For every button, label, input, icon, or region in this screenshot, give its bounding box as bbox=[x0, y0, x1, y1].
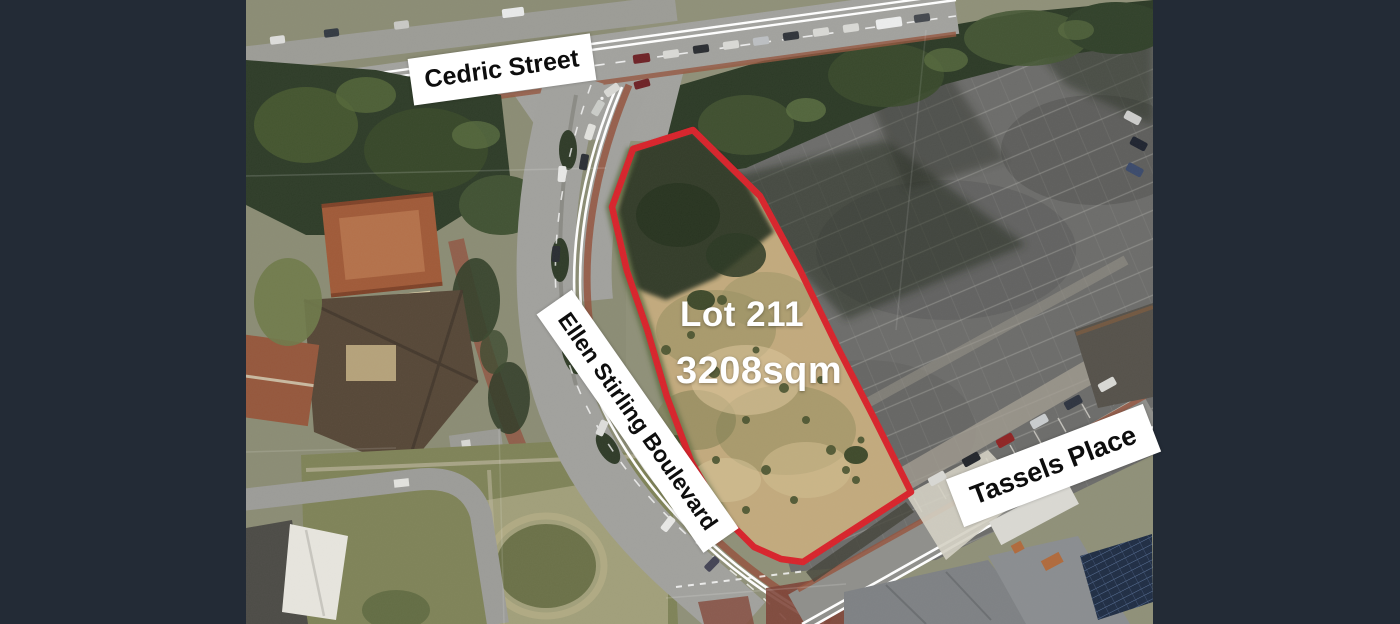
lot-area: 3208sqm bbox=[676, 350, 842, 393]
slide-canvas: Cedric Street Ellen Stirling Boulevard T… bbox=[0, 0, 1400, 624]
lot-title: Lot 211 bbox=[680, 295, 804, 335]
